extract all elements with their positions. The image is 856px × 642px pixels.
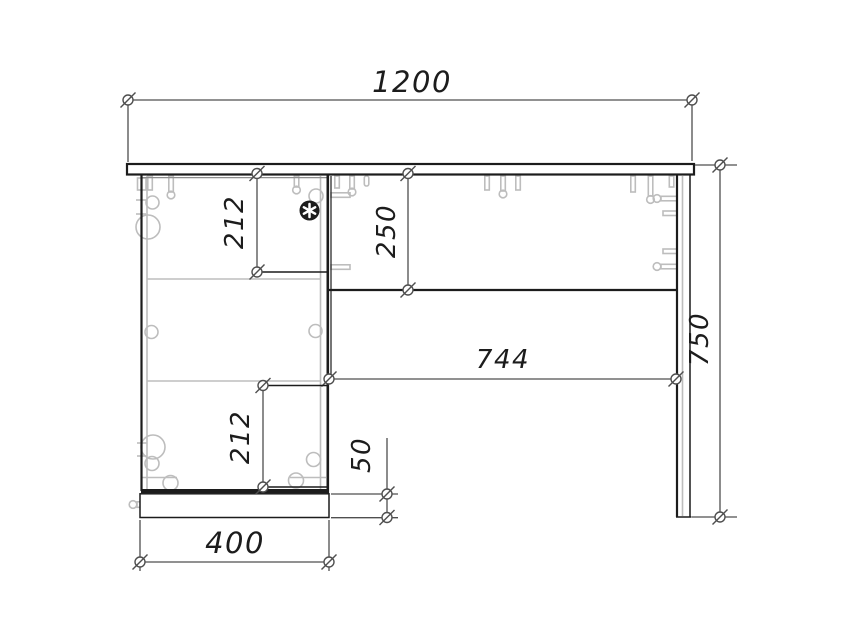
dimension-overall-height: 750 <box>685 158 737 525</box>
dim-endpoint-icon <box>133 555 148 570</box>
desk-outlines <box>127 164 694 518</box>
hinge-cup-icon <box>136 215 160 239</box>
screw-icons-leg <box>653 195 677 271</box>
dim-endpoint-icon <box>713 510 728 525</box>
technical-drawing-canvas: 1200 750 744 250 212 212 <box>0 0 856 642</box>
dim-label-lower-section: 212 <box>226 410 256 464</box>
dimension-pedestal-width: 400 <box>133 520 337 571</box>
hardware-fittings <box>129 176 682 516</box>
lock-knob-icon <box>300 201 320 221</box>
dimension-panel-drop: 250 <box>372 166 416 298</box>
dim-label-pedestal-width: 400 <box>205 526 265 560</box>
dim-endpoint-icon <box>322 372 337 387</box>
dim-endpoint-icon <box>380 487 395 502</box>
dim-label-plinth-height: 50 <box>347 437 377 473</box>
dim-endpoint-icon <box>380 510 395 525</box>
dim-endpoint-icon <box>713 158 728 173</box>
dim-label-overall-height: 750 <box>685 312 715 366</box>
dim-endpoint-icon <box>322 555 337 570</box>
dim-endpoint-icon <box>121 93 136 108</box>
dimension-plinth-height: 50 <box>331 437 398 525</box>
screw-icons-pedestal-side <box>331 193 350 269</box>
dim-label-overall-width: 1200 <box>372 65 452 99</box>
dim-endpoint-icon <box>250 265 265 280</box>
dim-endpoint-icon <box>401 283 416 298</box>
dim-endpoint-icon <box>685 93 700 108</box>
dimension-clear-span: 744 <box>322 345 684 387</box>
plinth <box>140 494 329 518</box>
dim-label-upper-section: 212 <box>220 195 250 249</box>
dim-endpoint-icon <box>669 372 684 387</box>
dim-label-clear-span: 744 <box>476 345 530 375</box>
dimension-overall-width: 1200 <box>121 65 700 162</box>
pedestal-bottom-panel <box>141 489 328 493</box>
dimension-upper-section: 212 <box>220 166 327 280</box>
dim-label-panel-drop: 250 <box>372 204 402 258</box>
